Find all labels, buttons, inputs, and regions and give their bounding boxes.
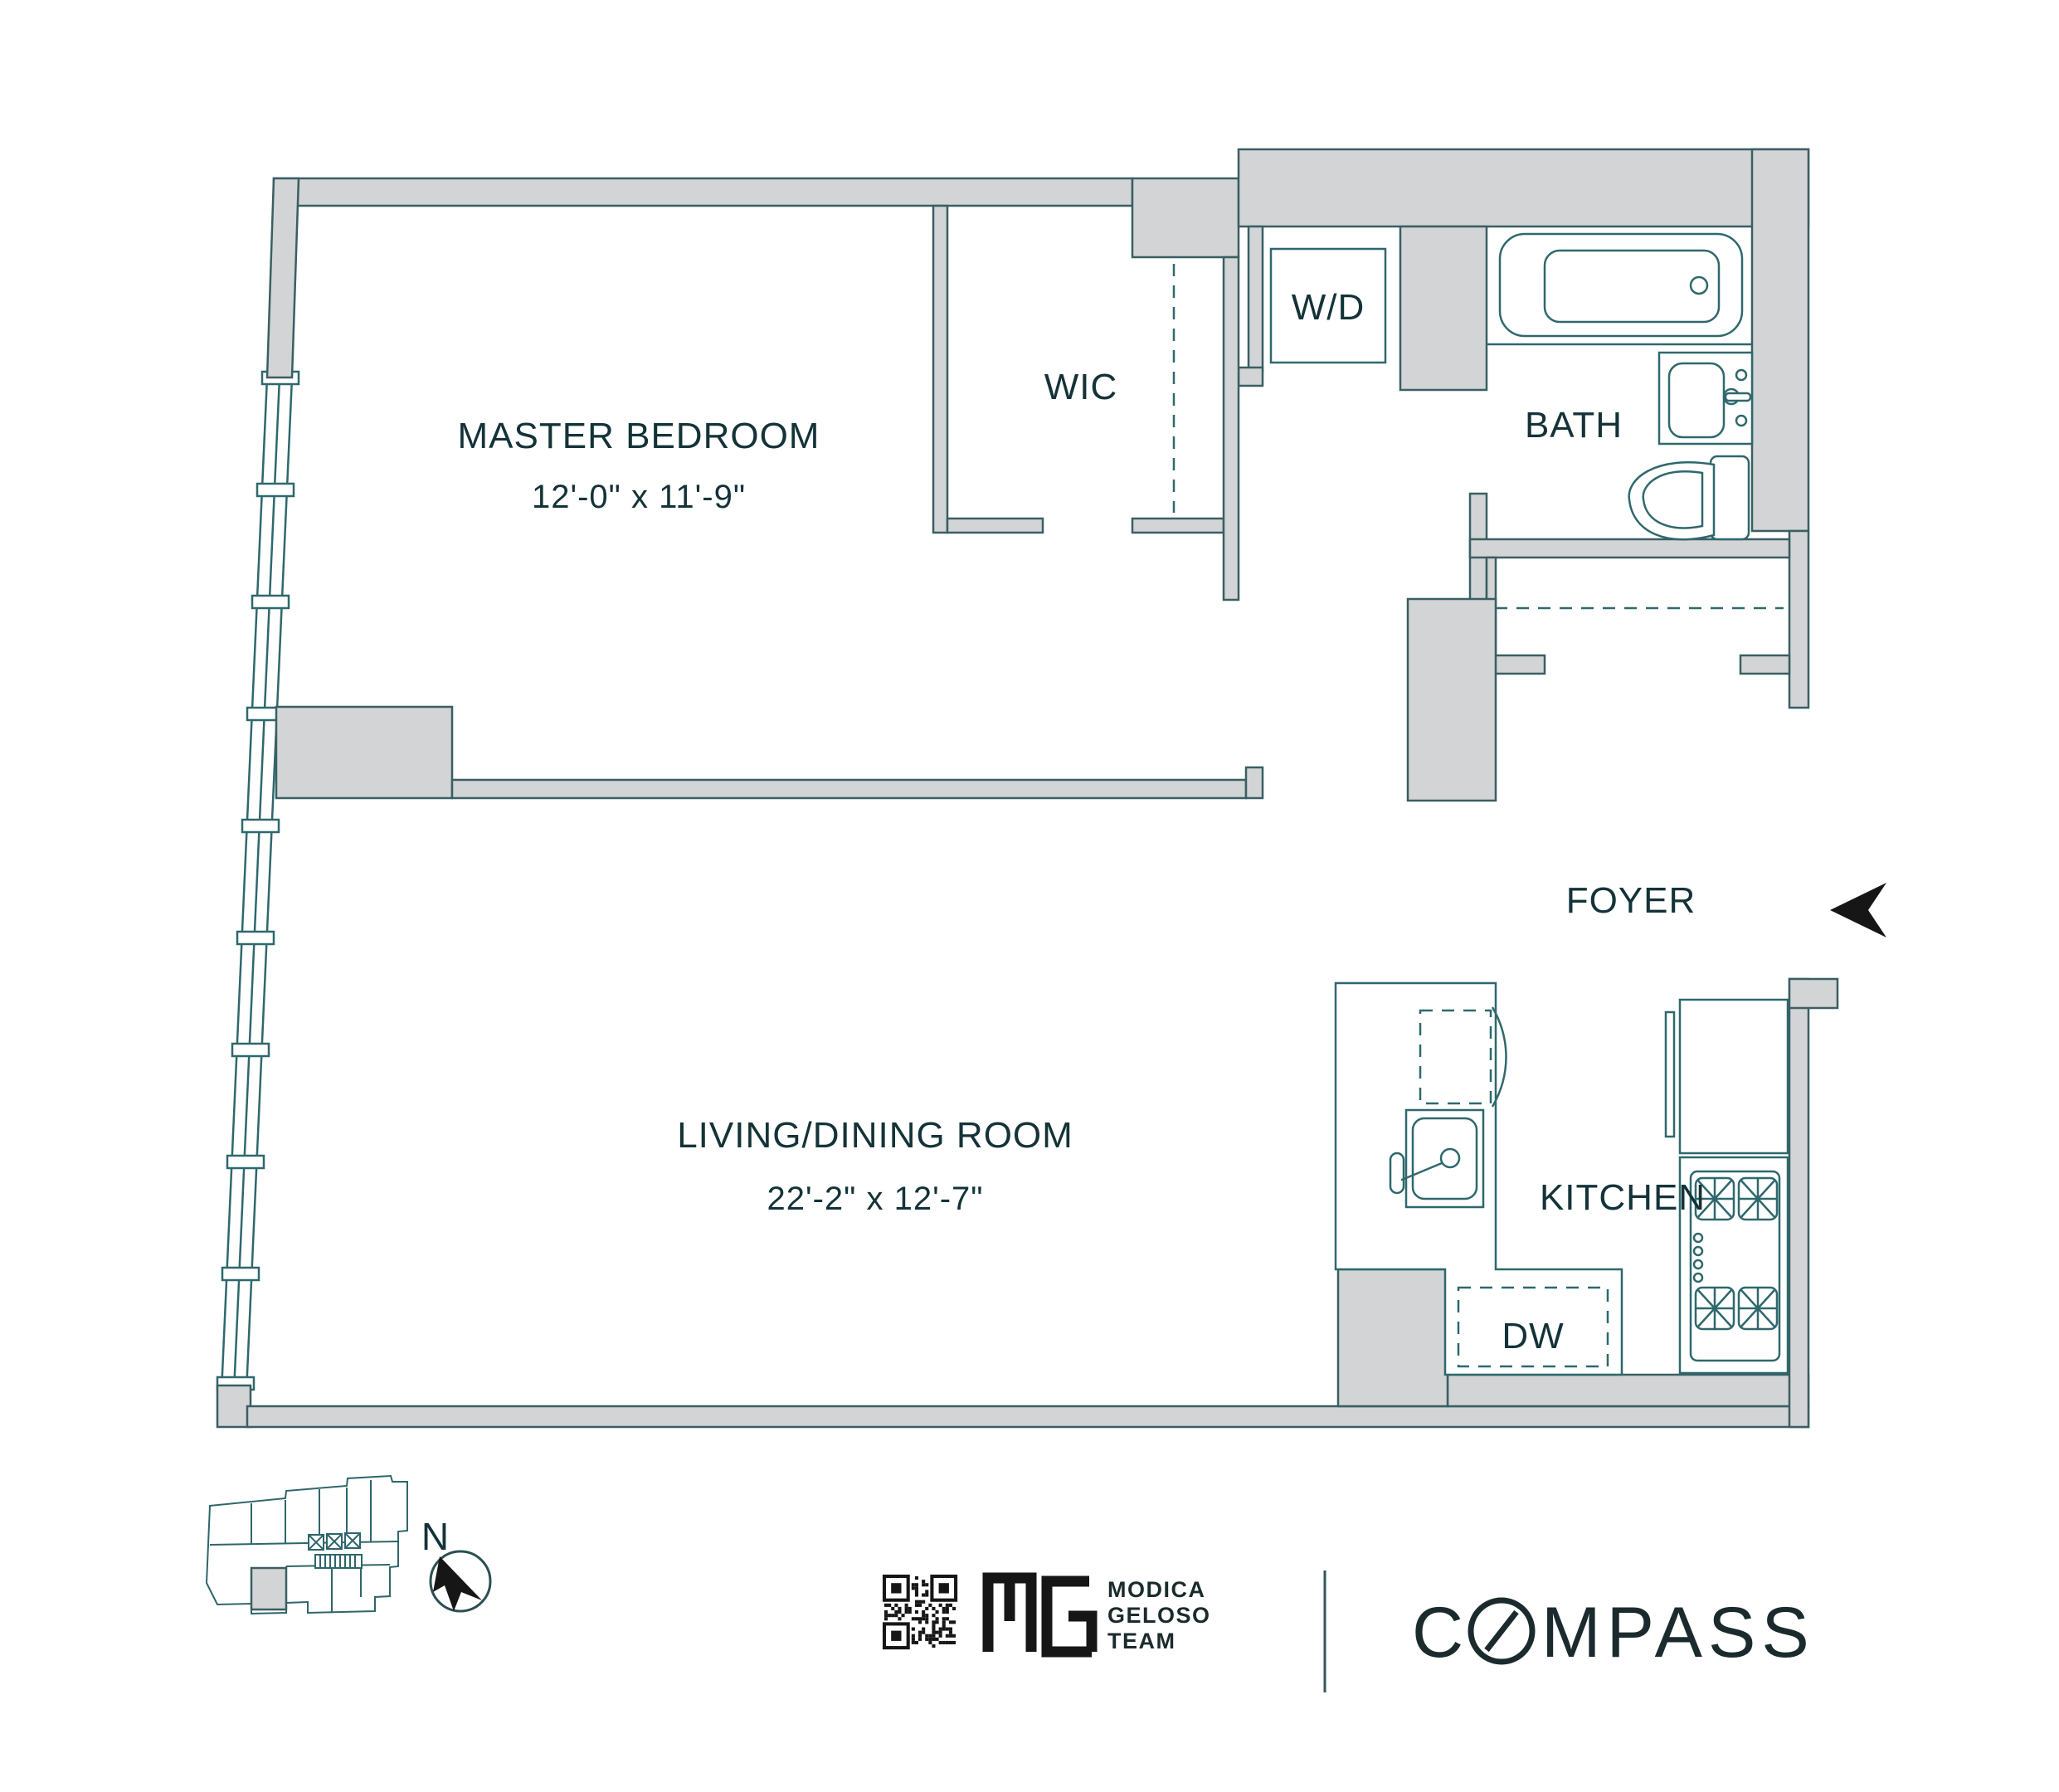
master-bedroom-dimensions: 12'-0" x 11'-9"	[532, 479, 746, 515]
refrigerator	[1666, 1000, 1788, 1153]
team-logo-line-1: MODICA	[1107, 1577, 1206, 1602]
foyer-label: FOYER	[1566, 880, 1696, 921]
bathroom-sink	[1659, 353, 1752, 444]
qr-code-icon	[884, 1576, 956, 1648]
key-plan	[207, 1476, 407, 1614]
right-wall-mid	[1789, 531, 1808, 708]
room-labels: MASTER BEDROOM 12'-0" x 11'-9" WIC W/D B…	[458, 287, 1706, 1356]
window-wall	[217, 372, 299, 1410]
kitchen-step-block	[1338, 1269, 1448, 1406]
wd-niche-left-wall	[1249, 226, 1263, 372]
north-label: N	[421, 1515, 450, 1558]
compass-letter-c: C	[1412, 1593, 1469, 1673]
master-bedroom-label: MASTER BEDROOM	[458, 416, 820, 456]
washer-dryer-label: W/D	[1292, 287, 1365, 328]
wd-niche-door-jamb	[1239, 368, 1263, 386]
mg-team-logo: MODICA GELOSO TEAM	[988, 1577, 1211, 1653]
closet-stub-right	[1740, 655, 1789, 674]
bottom-wall	[247, 1406, 1808, 1427]
wic-east-wall	[1224, 257, 1239, 600]
wic-west-wall	[933, 206, 947, 533]
wd-bath-pillar	[1400, 226, 1487, 390]
right-wall-upper	[1752, 149, 1808, 531]
wic-notch-wall	[1132, 178, 1239, 257]
key-plan-stairs	[315, 1555, 362, 1568]
dishwasher-label: DW	[1502, 1316, 1564, 1356]
compass-o-icon	[1471, 1600, 1532, 1662]
floor-plan-page: MASTER BEDROOM 12'-0" x 11'-9" WIC W/D B…	[0, 0, 2059, 1792]
bathtub	[1487, 234, 1752, 344]
north-arrow: N	[421, 1515, 490, 1611]
wic-south-wall-left	[947, 519, 1043, 533]
kitchen-bottom-wall	[1448, 1375, 1808, 1406]
bath-label: BATH	[1525, 405, 1623, 446]
key-plan-elevators	[309, 1533, 360, 1550]
walls	[217, 149, 1838, 1427]
foyer-corner-block	[1408, 599, 1496, 801]
bedroom-wall-block	[276, 707, 452, 798]
compass-logo: C MPASS	[1412, 1593, 1815, 1673]
key-plan-unit-highlight	[251, 1568, 286, 1609]
living-dining-label: LIVING/DINING ROOM	[677, 1115, 1073, 1156]
kitchen-label: KITCHEN	[1540, 1177, 1706, 1218]
entry-arrow-icon	[1830, 883, 1886, 937]
kitchen-right-wall	[1789, 979, 1808, 1427]
team-logo-line-2: GELOSO	[1107, 1603, 1211, 1628]
bottom-left-corner	[217, 1385, 251, 1427]
bedroom-door-jamb	[1246, 767, 1263, 798]
bedroom-south-wall	[452, 780, 1246, 798]
compass-letters-mpass: MPASS	[1541, 1593, 1815, 1673]
wic-label: WIC	[1044, 367, 1118, 407]
top-wall-right	[1239, 149, 1808, 226]
living-dining-dimensions: 22'-2" x 12'-7"	[767, 1181, 983, 1217]
wic-south-wall-right	[1132, 519, 1224, 533]
top-wall-left	[274, 178, 1132, 206]
left-wall-jamb	[267, 178, 299, 377]
team-logo-line-3: TEAM	[1107, 1629, 1176, 1653]
entry-stub-wall	[1789, 979, 1838, 1008]
toilet	[1629, 456, 1749, 539]
bath-south-wall	[1470, 539, 1789, 558]
